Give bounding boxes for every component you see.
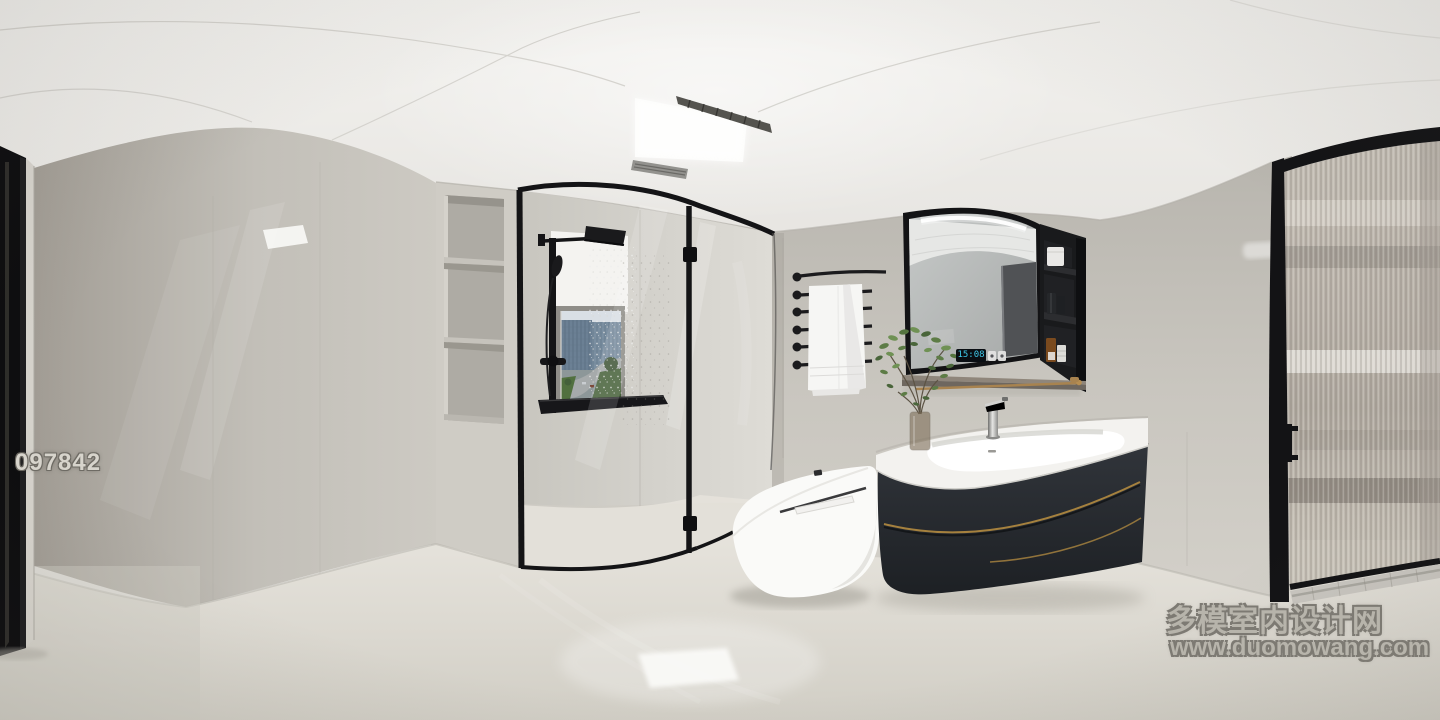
mirror-clock-display: 15:08 <box>956 349 986 362</box>
vignette-overlay <box>0 0 1440 720</box>
scene-art <box>0 0 1440 720</box>
panorama-bathroom-screenshot: 097842 多模室内设计网 www.duomowang.com 15:08 <box>0 0 1440 720</box>
